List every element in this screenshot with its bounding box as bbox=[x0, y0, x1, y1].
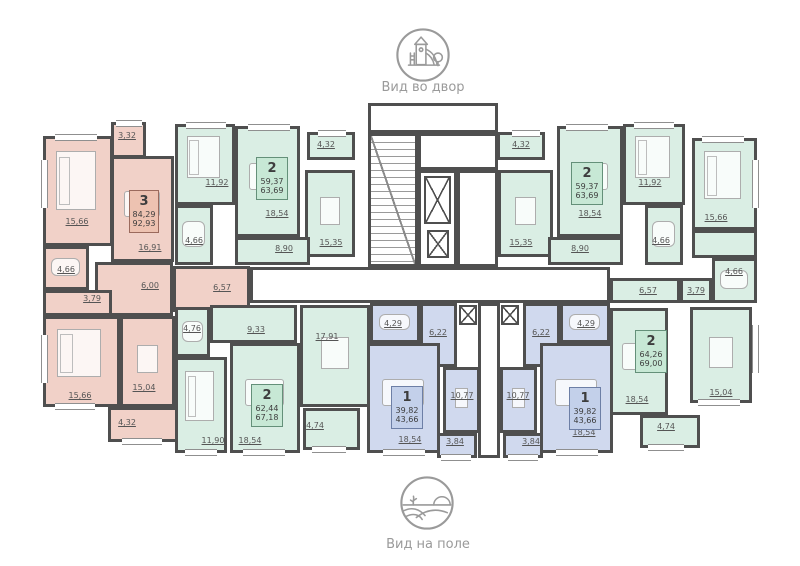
window bbox=[55, 134, 97, 141]
window bbox=[185, 449, 217, 456]
window bbox=[752, 160, 759, 208]
apartment-badge[interactable]: 259,3763,69 bbox=[571, 162, 603, 205]
apartment-rooms-count: 2 bbox=[267, 161, 276, 177]
apartment-area-living: 39,82 bbox=[574, 407, 597, 417]
window bbox=[566, 124, 608, 131]
area-label: 6,22 bbox=[532, 329, 550, 337]
apartment-area-total: 63,69 bbox=[576, 191, 599, 201]
area-label: 18,54 bbox=[626, 396, 649, 404]
window bbox=[556, 449, 598, 456]
room-stairs bbox=[368, 133, 418, 267]
area-label: 4,66 bbox=[185, 237, 203, 245]
apartment-rooms-count: 2 bbox=[582, 166, 591, 182]
window bbox=[441, 454, 471, 461]
apartment-area-total: 43,66 bbox=[396, 415, 419, 425]
area-label: 15,66 bbox=[69, 392, 92, 400]
area-label: 6,57 bbox=[639, 287, 657, 295]
room-gbr-wardrobe bbox=[692, 230, 757, 258]
window bbox=[41, 335, 48, 383]
apartment-area-living: 62,44 bbox=[256, 404, 279, 414]
area-label: 4,32 bbox=[512, 141, 530, 149]
area-label: 11,92 bbox=[639, 179, 662, 187]
apartment-badge[interactable]: 139,8243,66 bbox=[391, 386, 423, 429]
table-furniture bbox=[321, 337, 349, 370]
area-label: 4,66 bbox=[725, 268, 743, 276]
area-label: 3,32 bbox=[118, 132, 136, 140]
area-label: 10,77 bbox=[507, 392, 530, 400]
area-label: 15,66 bbox=[66, 218, 89, 226]
apartment-area-living: 39,82 bbox=[396, 406, 419, 416]
elevator bbox=[424, 176, 451, 224]
apartment-badge[interactable]: 259,3763,69 bbox=[256, 157, 288, 200]
bed-furniture bbox=[56, 151, 96, 209]
window bbox=[55, 403, 95, 410]
field-view-caption: Вид на поле bbox=[386, 537, 470, 552]
area-label: 17,91 bbox=[316, 333, 339, 341]
apartment-area-living: 84,29 bbox=[133, 210, 156, 220]
room-gtl-hall bbox=[235, 237, 310, 265]
room-gtl-bath bbox=[175, 205, 213, 265]
area-label: 4,74 bbox=[306, 422, 324, 430]
area-label: 15,66 bbox=[705, 214, 728, 222]
room-gbr-bath bbox=[712, 258, 757, 303]
area-label: 10,77 bbox=[451, 392, 474, 400]
area-label: 18,54 bbox=[573, 429, 596, 437]
apartment-area-living: 59,37 bbox=[576, 182, 599, 192]
window bbox=[752, 325, 759, 373]
area-label: 15,35 bbox=[510, 239, 533, 247]
apartment-area-total: 69,00 bbox=[640, 359, 663, 369]
area-label: 3,84 bbox=[446, 438, 464, 446]
room-gtl-bedroom bbox=[175, 124, 235, 205]
area-label: 16,91 bbox=[139, 244, 162, 252]
window bbox=[648, 444, 684, 451]
area-label: 18,54 bbox=[579, 210, 602, 218]
area-label: 4,74 bbox=[657, 423, 675, 431]
apartment-area-total: 67,18 bbox=[256, 413, 279, 423]
window bbox=[248, 124, 290, 131]
apartment-area-living: 59,37 bbox=[261, 177, 284, 187]
bed-furniture bbox=[185, 371, 214, 421]
area-label: 6,22 bbox=[429, 329, 447, 337]
area-label: 3,79 bbox=[83, 295, 101, 303]
room-red-bedroom-1 bbox=[43, 136, 113, 246]
shaft bbox=[459, 305, 477, 325]
area-label: 11,90 bbox=[202, 437, 225, 445]
area-label: 6,57 bbox=[213, 284, 231, 292]
area-label: 4,66 bbox=[652, 237, 670, 245]
area-label: 11,92 bbox=[206, 179, 229, 187]
room-elevator-hall bbox=[418, 133, 498, 170]
room-vestibule bbox=[457, 170, 498, 267]
area-label: 4,66 bbox=[57, 266, 75, 274]
area-label: 3,79 bbox=[687, 287, 705, 295]
apartment-rooms-count: 3 bbox=[139, 194, 148, 210]
room-corridor bbox=[250, 267, 610, 303]
bed-furniture bbox=[635, 136, 670, 178]
area-label: 6,00 bbox=[141, 282, 159, 290]
bed-furniture bbox=[704, 151, 741, 199]
room-gbl-hall bbox=[210, 305, 297, 343]
area-label: 8,90 bbox=[275, 245, 293, 253]
window bbox=[508, 454, 538, 461]
area-label: 8,90 bbox=[571, 245, 589, 253]
room-gtr-bath bbox=[645, 205, 683, 265]
table-furniture bbox=[137, 345, 159, 374]
window bbox=[116, 120, 142, 127]
window bbox=[512, 130, 540, 137]
room-red-wc bbox=[43, 290, 112, 316]
area-label: 18,54 bbox=[399, 436, 422, 444]
window bbox=[698, 399, 740, 406]
window bbox=[243, 449, 285, 456]
room-br-kitchen bbox=[500, 367, 537, 433]
apartment-badge[interactable]: 384,2992,93 bbox=[129, 190, 159, 233]
apartment-badge[interactable]: 262,4467,18 bbox=[251, 384, 283, 427]
floor-plan-page: Вид во двор 6,0015,663,3216,914,663,796,… bbox=[0, 0, 800, 566]
apartment-badge[interactable]: 264,2669,00 bbox=[635, 330, 667, 373]
window bbox=[383, 449, 425, 456]
area-label: 15,04 bbox=[133, 384, 156, 392]
table-furniture bbox=[709, 337, 734, 368]
apartment-area-living: 64,26 bbox=[640, 350, 663, 360]
apartment-area-total: 92,93 bbox=[133, 219, 156, 229]
room-gbl-kitchen-living bbox=[300, 305, 370, 407]
room-red-balcony-1 bbox=[111, 122, 146, 158]
apartment-rooms-count: 1 bbox=[402, 390, 411, 406]
shaft bbox=[501, 305, 519, 325]
area-label: 4,32 bbox=[317, 141, 335, 149]
room-bl-kitchen bbox=[443, 367, 480, 433]
area-label: 4,29 bbox=[384, 320, 402, 328]
window bbox=[186, 122, 226, 129]
bed-furniture bbox=[57, 329, 101, 377]
area-label: 4,29 bbox=[577, 320, 595, 328]
window bbox=[634, 122, 674, 129]
apartment-rooms-count: 1 bbox=[580, 391, 589, 407]
apartment-area-total: 43,66 bbox=[574, 416, 597, 426]
window bbox=[41, 160, 48, 208]
room-lobby bbox=[368, 103, 498, 133]
room-gtr-bedroom bbox=[623, 124, 685, 205]
elevator bbox=[427, 230, 449, 258]
table-furniture bbox=[320, 197, 339, 225]
area-label: 18,54 bbox=[266, 210, 289, 218]
area-label: 9,33 bbox=[247, 326, 265, 334]
apartment-rooms-count: 2 bbox=[262, 388, 271, 404]
area-label: 15,35 bbox=[320, 239, 343, 247]
window bbox=[702, 136, 744, 143]
bed-furniture bbox=[187, 136, 220, 178]
room-red-kitchen bbox=[120, 316, 175, 407]
area-label: 3,84 bbox=[522, 438, 540, 446]
window bbox=[122, 438, 162, 445]
room-duct bbox=[478, 303, 500, 458]
area-label: 18,54 bbox=[239, 437, 262, 445]
window bbox=[318, 130, 346, 137]
area-label: 4,32 bbox=[118, 419, 136, 427]
area-label: 15,04 bbox=[710, 389, 733, 397]
apartment-badge[interactable]: 139,8243,66 bbox=[569, 387, 601, 430]
apartment-rooms-count: 2 bbox=[646, 334, 655, 350]
field-icon bbox=[398, 474, 456, 532]
area-label: 4,76 bbox=[183, 325, 201, 333]
apartment-area-total: 63,69 bbox=[261, 186, 284, 196]
table-furniture bbox=[515, 197, 537, 225]
window bbox=[312, 446, 346, 453]
